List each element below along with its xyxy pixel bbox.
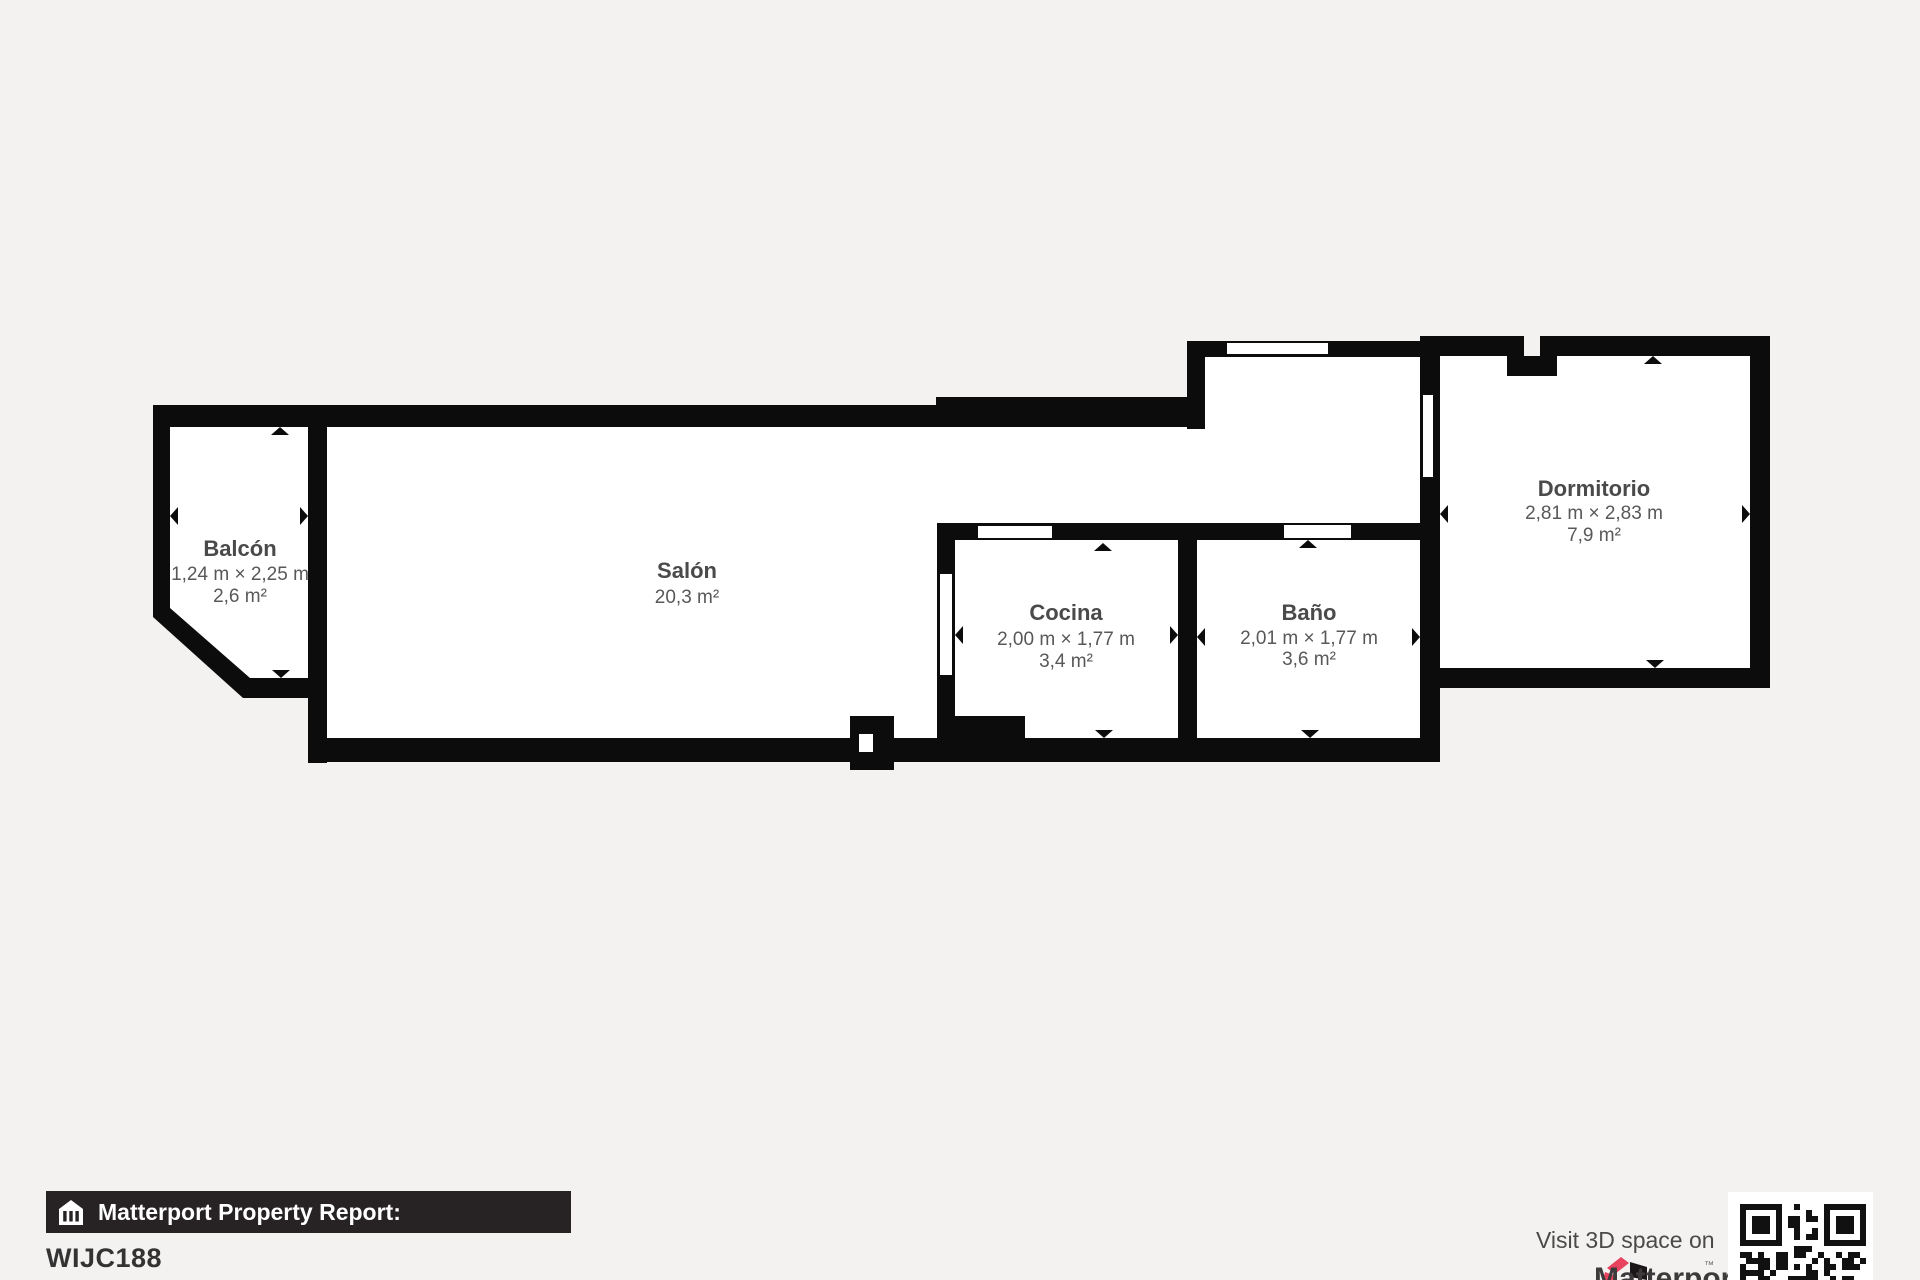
report-banner-label: Matterport Property Report:: [98, 1199, 401, 1226]
dormitorio-top-gap: [1524, 333, 1540, 358]
floor-plan: Balcón 1,24 m × 2,25 m 2,6 m² Salón 20,3…: [0, 0, 1920, 1280]
property-id: WIJC188: [46, 1243, 162, 1274]
balcon-dimensions: 1,24 m × 2,25 m: [171, 564, 309, 585]
trademark-mark: ™: [1704, 1260, 1714, 1271]
visit-3d-label: Visit 3D space on: [1536, 1227, 1708, 1254]
cocina-dimensions: 2,00 m × 1,77 m: [997, 629, 1135, 650]
dormitorio-name: Dormitorio: [1538, 476, 1650, 501]
property-report-page: Balcón 1,24 m × 2,25 m 2,6 m² Salón 20,3…: [0, 0, 1920, 1280]
cocina-bano-wall: [1178, 523, 1197, 762]
cocina-window: [977, 525, 1053, 539]
salon-cocina-door: [939, 573, 953, 676]
dormitorio-window: [1422, 394, 1434, 478]
dormitorio-right-wall: [1750, 336, 1770, 688]
salon-left-wall: [308, 405, 327, 763]
cocina-area: 3,4 m²: [1039, 651, 1093, 672]
matterport-wordmark: Matterport: [1594, 1262, 1742, 1280]
niche-window: [858, 733, 874, 753]
bano-door-opening: [1283, 524, 1352, 539]
bano-name: Baño: [1282, 600, 1337, 625]
qr-code: [1728, 1192, 1873, 1280]
balcon-name: Balcón: [203, 536, 276, 561]
cocina-bottom-step: [955, 716, 1025, 762]
cocina-top-wall: [937, 523, 1178, 540]
top-wall-right: [936, 397, 1205, 427]
top-wall-left: [153, 405, 940, 427]
dormitorio-area: 7,9 m²: [1567, 525, 1621, 546]
cocina-name: Cocina: [1029, 600, 1103, 625]
dormitorio-pillar: [1507, 356, 1557, 376]
corridor-window: [1226, 342, 1329, 355]
report-banner: Matterport Property Report:: [46, 1191, 571, 1233]
salon-area: 20,3 m²: [655, 587, 719, 608]
bano-area: 3,6 m²: [1282, 649, 1336, 670]
dormitorio-top-wall: [1428, 336, 1770, 356]
balcon-left-wall: [153, 405, 170, 617]
salon-name: Salón: [657, 558, 717, 583]
dormitorio-dimensions: 2,81 m × 2,83 m: [1525, 503, 1663, 524]
dormitorio-bottom-wall: [1428, 668, 1770, 688]
bano-dimensions: 2,01 m × 1,77 m: [1240, 628, 1378, 649]
house-icon: [58, 1199, 84, 1226]
balcon-area: 2,6 m²: [213, 586, 267, 607]
